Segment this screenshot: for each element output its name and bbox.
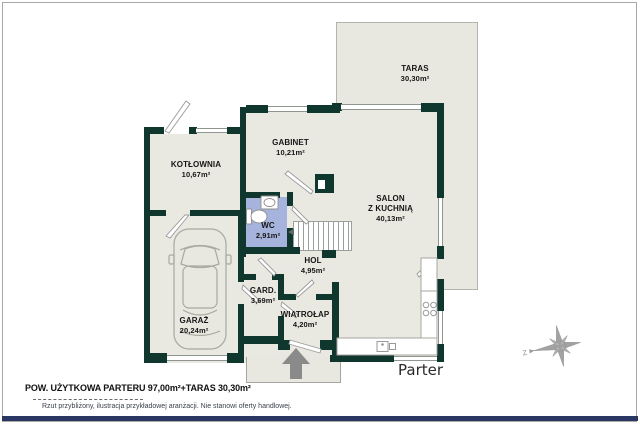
- room-area: 20,24m²: [150, 326, 238, 336]
- room-area: 30,30m²: [365, 74, 465, 84]
- room-area: 4,95m²: [288, 266, 338, 276]
- room-name: SALON: [343, 194, 438, 204]
- wall: [238, 247, 300, 254]
- window: [438, 198, 443, 246]
- room-area: 3,69m²: [238, 296, 288, 306]
- staircase: [293, 221, 352, 251]
- room-label-wc: WC 2,91m²: [243, 221, 293, 241]
- room-name: TARAS: [365, 64, 465, 74]
- wall: [437, 108, 444, 198]
- wall: [287, 192, 293, 206]
- room-area: 10,67m²: [146, 170, 246, 180]
- wall: [244, 274, 256, 280]
- floor-name-label: Parter: [398, 361, 468, 379]
- floor-plan: Z TARAS 30,30m² KOTŁOWNIA 10,67m² GABINE…: [0, 0, 640, 426]
- room-label-garaz: GARAŻ 20,24m²: [150, 316, 238, 336]
- room-label-hol: HOL 4,95m²: [288, 256, 338, 276]
- room-label-gabinet: GABINET 10,21m²: [243, 138, 338, 158]
- room-area: 2,91m²: [243, 231, 293, 241]
- wall: [144, 127, 164, 134]
- wall: [144, 210, 166, 216]
- wall: [144, 353, 167, 363]
- window: [196, 128, 227, 133]
- garage-door-opening: [167, 355, 227, 361]
- wall: [320, 340, 334, 350]
- room-label-kotlownia: KOTŁOWNIA 10,67m²: [146, 160, 246, 180]
- room-label-wiatrolap: WIATROŁAP 4,20m²: [270, 310, 340, 330]
- room-name: Z KUCHNIĄ: [343, 204, 438, 214]
- room-area: 4,20m²: [270, 320, 340, 330]
- wall: [437, 246, 444, 259]
- wall: [278, 340, 290, 350]
- room-area: 10,21m²: [243, 148, 338, 158]
- window: [268, 106, 307, 112]
- wall: [246, 192, 280, 198]
- wall: [437, 344, 444, 362]
- room-name: GABINET: [243, 138, 338, 148]
- room-name: HOL: [288, 256, 338, 266]
- wall: [238, 304, 244, 363]
- room-name: KOTŁOWNIA: [146, 160, 246, 170]
- room-label-salon: SALON Z KUCHNIĄ 40,13m²: [343, 194, 438, 224]
- wall: [437, 279, 444, 311]
- wall: [330, 355, 394, 362]
- room-name: GARAŻ: [150, 316, 238, 326]
- area-summary: POW. UŻYTKOWA PARTERU 97,00m²+TARAS 30,3…: [25, 383, 251, 393]
- room-name: WIATROŁAP: [270, 310, 340, 320]
- disclaimer: Rzut przybliżony, ilustracja przykładowe…: [42, 403, 292, 410]
- wall: [316, 294, 334, 300]
- bottom-accent-bar: [2, 416, 638, 421]
- wall: [246, 105, 268, 113]
- chimney-notch: [318, 180, 325, 189]
- separator-dashed: [33, 399, 143, 400]
- window: [341, 104, 421, 110]
- room-label-gard: GARD. 3,69m²: [238, 286, 288, 306]
- room-name: GARD.: [238, 286, 288, 296]
- wall: [244, 336, 280, 344]
- room-label-taras: TARAS 30,30m²: [365, 64, 465, 84]
- room-name: WC: [243, 221, 293, 231]
- window: [438, 311, 443, 344]
- room-area: 40,13m²: [343, 214, 438, 224]
- door-opening: [164, 127, 189, 134]
